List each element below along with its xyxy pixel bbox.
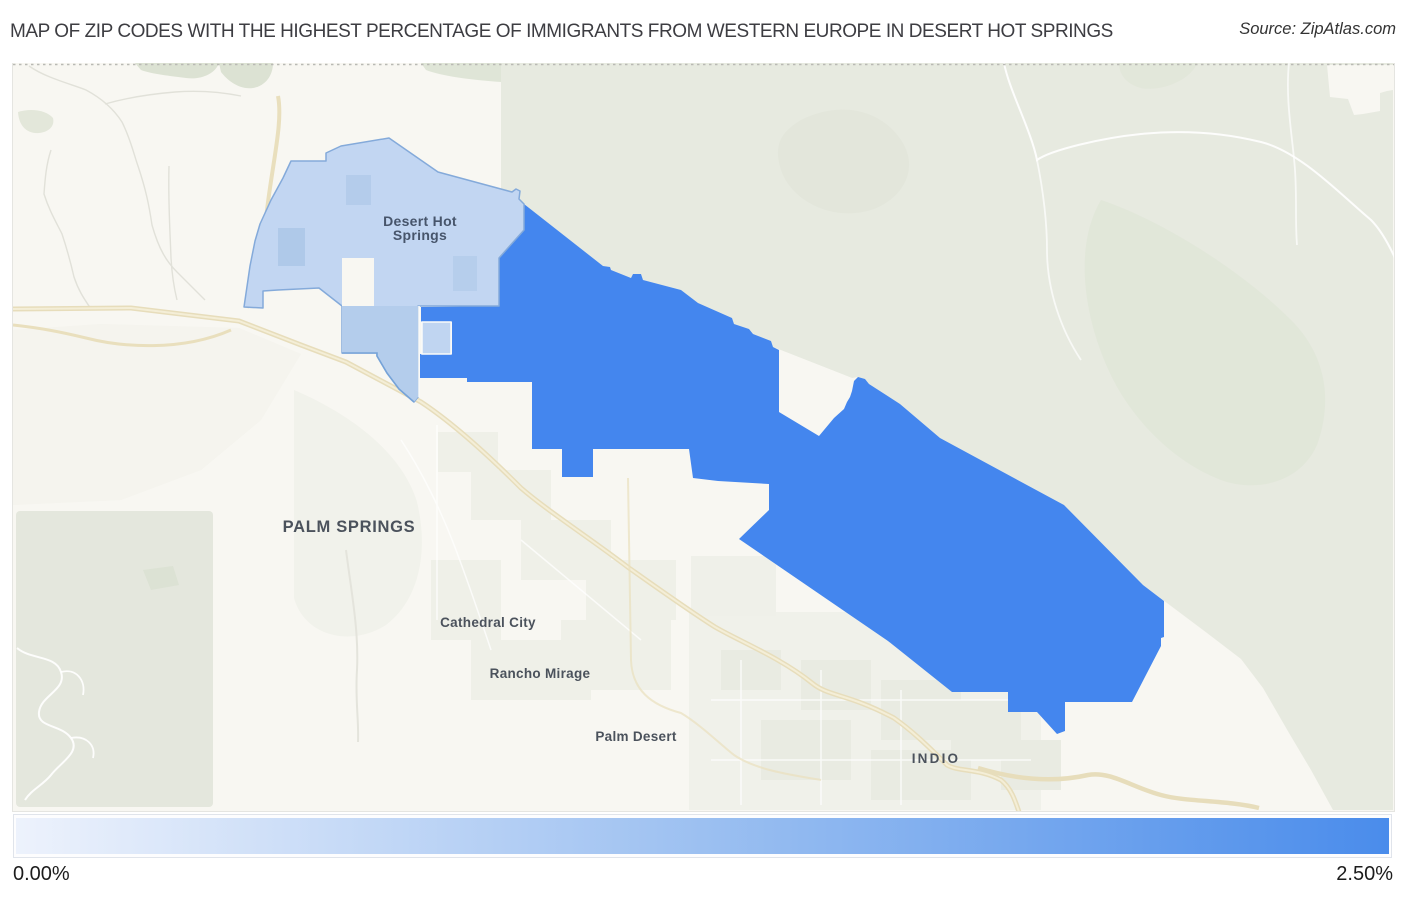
svg-text:Rancho Mirage: Rancho Mirage	[490, 666, 591, 681]
svg-text:Palm Desert: Palm Desert	[595, 729, 677, 744]
svg-text:Springs: Springs	[393, 227, 447, 243]
svg-text:Cathedral City: Cathedral City	[440, 615, 536, 630]
svg-text:PALM SPRINGS: PALM SPRINGS	[283, 518, 416, 536]
svg-text:INDIO: INDIO	[912, 751, 961, 766]
